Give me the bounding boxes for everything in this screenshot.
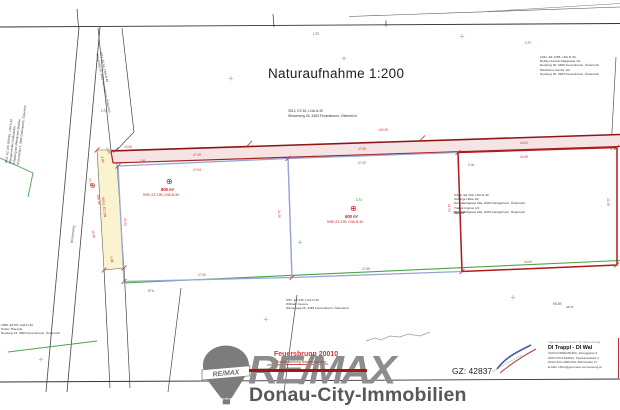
remax-balloon-icon: RE/MAX [202, 345, 250, 404]
parcel-outlines [118, 148, 617, 282]
surveyor-email: E-Mail: office@geometer-vermessung.at [548, 365, 620, 370]
survey-plan-sheet: RE/MAX RE/MAX Donau-City-Immobilien Natu… [0, 0, 620, 410]
signature [492, 345, 536, 373]
survey-mark-zigzag [366, 332, 430, 341]
red-road-strip [111, 135, 620, 164]
remax-red-bar-icon [249, 369, 367, 372]
sheet-frame-lines [0, 4, 620, 383]
remax-company-name: Donau-City-Immobilien [249, 384, 467, 407]
file-number: GZ: 42837 [452, 366, 492, 376]
road-lines [46, 27, 297, 392]
surveyor-block: Ingenieurkonsulenten für Vermessung DI T… [548, 340, 620, 369]
plan-title: Naturaufnahme 1:200 [268, 66, 404, 81]
plan-subtitle: Plandarstellung Naturaufnahme [276, 360, 327, 364]
surveyor-heading: Ingenieurkonsulenten für Vermessung [548, 340, 620, 344]
plan-name: Feuersbrunn 20010 [274, 351, 338, 358]
green-boundary-lines [0, 158, 620, 352]
wedge-parcel-lines [98, 28, 134, 154]
